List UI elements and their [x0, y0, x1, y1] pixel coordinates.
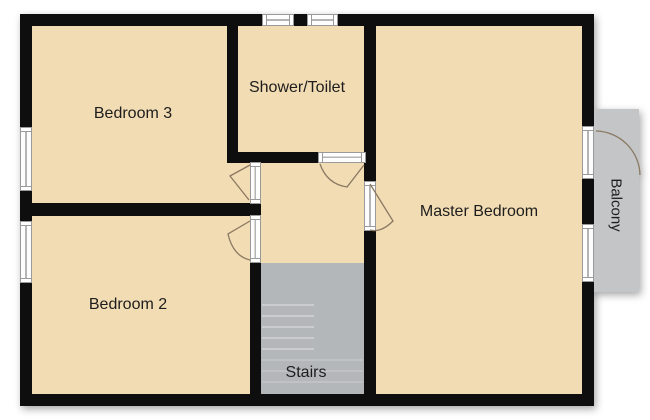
- door-balcony: [582, 127, 594, 178]
- wall-stairs-west: [250, 262, 261, 394]
- window-shower-left: [263, 14, 293, 26]
- floor-plan: Bedroom 3 Shower/Toilet Master Bedroom B…: [0, 0, 650, 420]
- wall-bedroom-divider: [32, 203, 261, 216]
- window-bedroom2: [20, 222, 32, 282]
- wall-master-west-lower: [364, 230, 376, 394]
- door-master-bedroom: [364, 182, 376, 230]
- wall-shower-south: [227, 152, 319, 163]
- room-label-balcony: Balcony: [608, 178, 625, 231]
- window-shower-right: [308, 14, 337, 26]
- room-label-bedroom3: Bedroom 3: [94, 105, 172, 123]
- door-bedroom3: [250, 163, 261, 203]
- room-label-shower-toilet: Shower/Toilet: [249, 79, 345, 97]
- room-label-master-bedroom: Master Bedroom: [420, 203, 538, 221]
- room-label-stairs: Stairs: [286, 364, 327, 382]
- window-bedroom3: [20, 128, 32, 190]
- wall-shower-west: [227, 26, 238, 163]
- door-shower-toilet: [319, 152, 365, 163]
- room-label-bedroom2: Bedroom 2: [89, 296, 167, 314]
- floor-plan-shadow-layer: Bedroom 3 Shower/Toilet Master Bedroom B…: [0, 0, 650, 420]
- door-bedroom2: [250, 216, 261, 262]
- window-master-balcony: [582, 225, 594, 281]
